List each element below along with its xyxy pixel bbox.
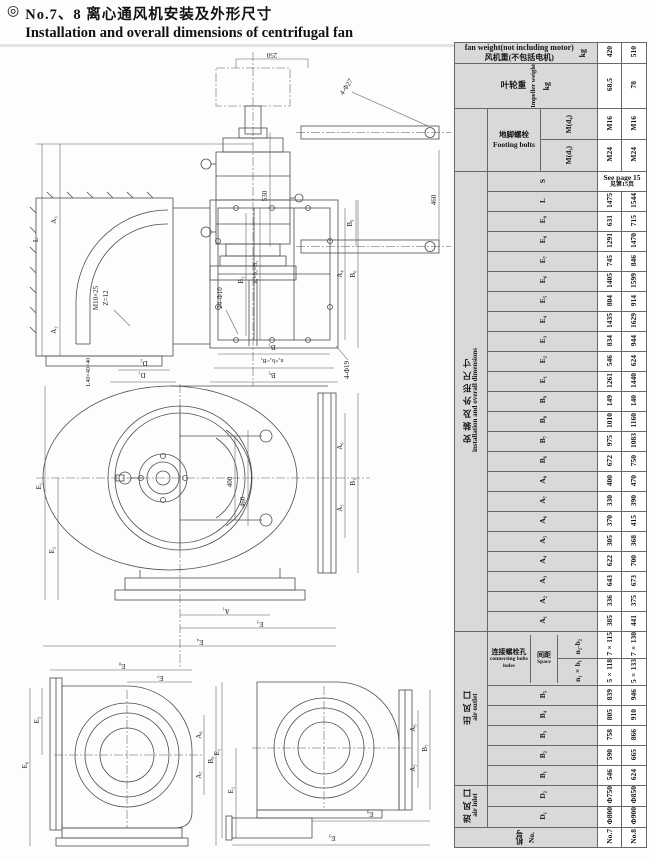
dim-label-A7: A₇ — [195, 771, 203, 779]
holes-n2b2-no8: 7×130 — [622, 631, 647, 658]
dim-label: A₂ — [488, 591, 598, 611]
dim-label-B7b: B₇ — [421, 744, 429, 752]
dim-label: B₉ — [488, 391, 598, 411]
dim-value-no8-text: 1440 — [630, 373, 638, 388]
dim-value-no8-text: 140 — [630, 395, 638, 406]
dim-label-4phi27: 4-Φ27 — [338, 77, 355, 97]
fan-weight-en: fan weight(not including motor) — [465, 43, 574, 53]
dim-label-text: B₄ — [539, 711, 547, 718]
dim-value-no7-text: 400 — [606, 475, 614, 486]
dim-value-no7-text: 805 — [606, 709, 614, 720]
dim-value-no8: 1629 — [622, 311, 647, 331]
dim-value-no8: 624 — [622, 351, 647, 371]
fan-weight-zh: 风机重(不包括电机) — [465, 53, 574, 63]
dim-value-no7-text: 1405 — [606, 273, 614, 288]
dim-value-no7: 149 — [598, 391, 622, 411]
dim-label-text: E₄ — [539, 316, 547, 323]
dim-label: B₁ — [488, 766, 598, 786]
dim-label: B₄ — [488, 706, 598, 726]
dim-value-no8-text: 624 — [630, 769, 638, 780]
unit-kg: kg — [543, 82, 551, 90]
dim-label-E1: E₁ — [35, 483, 43, 490]
dim-label-E2b: E₂ — [227, 786, 235, 793]
space-label: 间距Space — [531, 635, 558, 683]
dim-label-text: A₄ — [539, 556, 547, 564]
dim-value-no7: 643 — [598, 571, 622, 591]
dim-label-A3: A₃ — [50, 216, 58, 224]
dim-value-no8: 673 — [622, 571, 647, 591]
dim-value-no8-text: 944 — [630, 335, 638, 346]
dim-value-no8: 700 — [622, 551, 647, 571]
holes-n1b1-no8: 5×133 — [622, 659, 647, 686]
dim-value-no7: 834 — [598, 331, 622, 351]
dim-value-no8: 715 — [622, 211, 647, 231]
dim-label-250: 250 — [266, 51, 277, 59]
d2-no8: Φ850 — [622, 786, 647, 807]
dim-value-no7: 745 — [598, 251, 622, 271]
dim-label-D1: D₁ — [488, 806, 598, 827]
dim-value-no8-text: 914 — [630, 295, 638, 306]
dim-value-no7-text: 631 — [606, 215, 614, 226]
dim-label-B3: B₃ — [268, 343, 276, 351]
dim-value-no7: 385 — [598, 611, 622, 631]
dim-label: B₆ — [488, 451, 598, 471]
dim-value-no7: 1261 — [598, 371, 622, 391]
dim-value-no7-text: 385 — [606, 615, 614, 626]
drawing-volute-side: E₁ E₂ 400 460 A₆ A₅ B₇ A₁ E₃ E₄ — [30, 378, 430, 676]
page-header: ◎ No.7、8 离心通风机安装及外形尺寸 Installation and o… — [7, 3, 353, 42]
s-value: See page 15见第15页 — [598, 171, 647, 191]
dim-value-no7-text: 546 — [606, 769, 614, 780]
dim-value-no8: 944 — [622, 331, 647, 351]
dim-label-D2: D₂ — [140, 359, 148, 367]
dim-label-E7: E₇ — [156, 674, 163, 682]
dim-label-B7: B₇ — [349, 478, 357, 486]
dim-label: E₃ — [488, 331, 598, 351]
table-row-d2: 进 风 口air inlet D₂ Φ750 Φ850 — [455, 786, 647, 807]
dim-value-no7: 330 — [598, 491, 622, 511]
dim-value-no8-text: 750 — [630, 455, 638, 466]
dim-value-no7: 672 — [598, 451, 622, 471]
dim-value-no7-text: 643 — [606, 575, 614, 586]
dim-label-A5: A₅ — [336, 504, 344, 512]
line-art — [30, 670, 216, 846]
dim-label-B9: B₉ — [346, 219, 354, 227]
dim-value-no8-text: 1629 — [630, 313, 638, 328]
model-label: 机号No. — [455, 827, 598, 847]
dim-value-no8-text: 375 — [630, 595, 638, 606]
dim-label-A4: A₄ — [336, 270, 344, 278]
footing-d3-no7: M24 — [598, 140, 622, 172]
dim-value-no7: 336 — [598, 591, 622, 611]
dim-value-no7: 1405 — [598, 271, 622, 291]
dim-value-no7: 758 — [598, 726, 622, 746]
inlet-group-header: 进 风 口air inlet — [455, 786, 488, 827]
dim-label-460b: 460 — [239, 496, 247, 507]
dim-label: B₃ — [488, 726, 598, 746]
connecting-bolts-label: 连接螺栓孔connecting bolts holes — [488, 635, 531, 683]
dim-label-E3b: E₃ — [328, 834, 335, 842]
dim-value-no8-text: 441 — [630, 615, 638, 626]
drawing-front-view-right: E₁ E₂ A₆ A₅ B₇ E₉ E₃ — [212, 660, 444, 860]
dim-value-no7-text: 590 — [606, 749, 614, 760]
dim-value-no7-text: 1475 — [606, 193, 614, 208]
footing-d4-no7: M16 — [598, 108, 622, 140]
dim-label-D2: D₂ — [488, 786, 598, 807]
note-Z12: Z=12 — [102, 290, 110, 306]
dim-value-no8: 1544 — [622, 191, 647, 211]
dim-label-text: E₂ — [539, 356, 547, 363]
footing-d3-label: M(d₃) — [541, 140, 597, 171]
dim-label-text: B₂ — [539, 751, 547, 758]
dim-value-no7: 622 — [598, 551, 622, 571]
dim-label-n1b1B2: n₁×b₁=B₂ — [253, 260, 259, 283]
dim-label-A8: A₈ — [195, 731, 203, 739]
d1-no7: Φ800 — [598, 806, 622, 827]
dim-value-no7-text: 149 — [606, 395, 614, 406]
impeller-label: 叶轮重Impeller weightkg — [455, 64, 598, 109]
drawing-front-view-left: E₈ E₇ E₅ E₆ A₈ A₇ B₈ — [22, 660, 227, 860]
drawing-fan-assembly: 250 4-Φ27 530 460 B₉ L A₃ A₂ M10×25 Z=12… — [18, 48, 455, 393]
dim-label: A₈ — [488, 471, 598, 491]
dim-value-no7-text: 1291 — [606, 233, 614, 248]
dim-value-no7-text: 1261 — [606, 373, 614, 388]
dim-value-no7-text: 546 — [606, 355, 614, 366]
dim-value-no7: 1475 — [598, 191, 622, 211]
table-row-fan-weight: fan weight(not including motor)风机重(不包括电机… — [455, 43, 647, 64]
dim-label-E1b: E₁ — [213, 749, 221, 756]
fan-weight-label: fan weight(not including motor)风机重(不包括电机… — [455, 43, 598, 64]
connecting-bolts-cell: 连接螺栓孔connecting bolts holes 间距Space n₂-b… — [488, 631, 598, 686]
dim-value-no7-text: 305 — [606, 535, 614, 546]
footing-d4-no8: M16 — [622, 108, 647, 140]
dim-value-no8-text: 673 — [630, 575, 638, 586]
dim-label: B₂ — [488, 746, 598, 766]
dim-value-no8-text: 715 — [630, 215, 638, 226]
dim-value-no7-text: 804 — [606, 295, 614, 306]
dim-label-n2b2B4: n₂×b₂=B₄ — [260, 357, 283, 363]
dim-value-no8: 441 — [622, 611, 647, 631]
dim-value-no8-text: 470 — [630, 475, 638, 486]
dim-label: L — [488, 191, 598, 211]
dim-value-no7: 804 — [598, 291, 622, 311]
holes-n2b2-no7: 7×115 — [598, 631, 622, 658]
impeller-no8: 78 — [622, 64, 647, 109]
dim-value-no8: 665 — [622, 746, 647, 766]
fan-weight-no7: 420 — [598, 43, 622, 64]
dim-label-A6: A₆ — [336, 442, 344, 450]
dim-label-A6b: A₆ — [409, 724, 417, 732]
dim-value-no8: 1083 — [622, 431, 647, 451]
dim-label: E₉ — [488, 211, 598, 231]
dim-value-no7: 975 — [598, 431, 622, 451]
impeller-no7: 68.5 — [598, 64, 622, 109]
dim-label: B₇ — [488, 431, 598, 451]
fan-weight-no8-text: 510 — [630, 46, 638, 57]
dim-value-no8-text: 624 — [630, 355, 638, 366]
dim-label-E5: E₅ — [33, 716, 41, 723]
dim-label-460: 460 — [430, 194, 438, 205]
dim-label: A₄ — [488, 551, 598, 571]
dim-value-no8-text: 1160 — [630, 413, 638, 428]
dim-label: E₁ — [488, 371, 598, 391]
line-art — [222, 682, 430, 845]
dim-label-text: A₆ — [539, 516, 547, 524]
dim-value-no8: 390 — [622, 491, 647, 511]
dim-label-text: E₃ — [539, 336, 547, 343]
dim-value-no8-text: 665 — [630, 749, 638, 760]
dim-label-E4: E₄ — [196, 638, 203, 646]
dim-label-text: B₉ — [539, 396, 547, 403]
dim-label-text: A₇ — [539, 496, 547, 504]
dim-label-text: E₅ — [539, 296, 547, 303]
dim-value-no7-text: 622 — [606, 555, 614, 566]
fan-weight-no8: 510 — [622, 43, 647, 64]
dim-value-no8: 910 — [622, 706, 647, 726]
dim-label: B₅ — [488, 686, 598, 706]
holes-n1b1-no7: 5×118 — [598, 659, 622, 686]
dim-label: E₅ — [488, 291, 598, 311]
dim-value-no8: 375 — [622, 591, 647, 611]
dim-label: A₆ — [488, 511, 598, 531]
dim-label-text: B₆ — [539, 456, 547, 463]
dim-label: E₂ — [488, 351, 598, 371]
dim-label: A₃ — [488, 571, 598, 591]
dim-value-no7-text: 330 — [606, 495, 614, 506]
line-art — [36, 384, 370, 668]
holes-n2b2-label: n₂-b₂ — [558, 635, 597, 660]
footing-d4-label: M(d₄) — [541, 109, 597, 141]
dim-value-no7-text: 839 — [606, 689, 614, 700]
table-row-model: 机号No. No.7 No.8 — [455, 827, 647, 847]
note-M10x25: M10×25 — [92, 285, 100, 310]
table-row-impeller: 叶轮重Impeller weightkg 68.5 78 — [455, 64, 647, 109]
dim-value-no7: 305 — [598, 531, 622, 551]
dim-value-no8: 946 — [622, 686, 647, 706]
dim-value-no8-text: 700 — [630, 555, 638, 566]
dim-value-no7: 400 — [598, 471, 622, 491]
dim-value-no8-text: 1470 — [630, 233, 638, 248]
dim-value-no8-text: 846 — [630, 255, 638, 266]
dim-label-530: 530 — [261, 190, 269, 201]
dim-label: A₅ — [488, 531, 598, 551]
footing-d3-no8: M24 — [622, 140, 647, 172]
dim-label-L: L — [32, 238, 40, 242]
note-4phi19: 4-Φ19 — [343, 361, 351, 379]
dim-value-no8-text: 368 — [630, 535, 638, 546]
dim-value-no8: 1160 — [622, 411, 647, 431]
footing-bolts-label: 地脚螺栓Footing bolts — [488, 109, 541, 171]
dim-value-no7-text: 758 — [606, 729, 614, 740]
dim-label-E2: E₂ — [48, 546, 56, 553]
dim-value-no8: 1470 — [622, 231, 647, 251]
dim-label-text: A₁ — [539, 616, 547, 624]
table-row-footing-d4: 地脚螺栓Footing bolts M(d₄) M(d₃) M16 M16 — [455, 108, 647, 140]
dim-value-no8: 1440 — [622, 371, 647, 391]
dim-label-text: E₇ — [539, 256, 547, 263]
dim-value-no8: 415 — [622, 511, 647, 531]
dimensions-table: fan weight(not including motor)风机重(不包括电机… — [454, 42, 647, 848]
dim-value-no8-text: 1083 — [630, 433, 638, 448]
dim-label-text: E₆ — [539, 276, 547, 283]
dim-label-text: B₇ — [539, 436, 547, 443]
dim-label-400: 400 — [226, 476, 234, 487]
dim-value-no7: 631 — [598, 211, 622, 231]
dim-label: E₆ — [488, 271, 598, 291]
note-24phi10: 24-Φ10 — [216, 287, 224, 309]
dim-value-no7: 370 — [598, 511, 622, 531]
dim-label-A1: A₁ — [222, 607, 230, 615]
dim-label-text: A₃ — [539, 576, 547, 584]
impeller-no8-text: 78 — [630, 81, 638, 89]
dim-label-B6: B₆ — [349, 270, 357, 278]
dim-label-text: L — [539, 198, 547, 203]
dim-value-no7-text: 1010 — [606, 413, 614, 428]
outlet-group-header: 出 风 口air outlet — [455, 631, 488, 786]
model-zh: 机号 — [516, 830, 524, 845]
dim-value-no7: 1291 — [598, 231, 622, 251]
dim-value-no8: 470 — [622, 471, 647, 491]
dim-label: E₇ — [488, 251, 598, 271]
dim-value-no7-text: 745 — [606, 255, 614, 266]
dim-value-no8: 1599 — [622, 271, 647, 291]
dim-value-no7-text: 834 — [606, 335, 614, 346]
dim-label-text: A₅ — [539, 536, 547, 544]
dim-value-no8-text: 390 — [630, 495, 638, 506]
dim-label-text: B₅ — [539, 691, 547, 698]
impeller-no7-text: 68.5 — [606, 78, 614, 91]
dim-label-E3: E₃ — [256, 620, 263, 628]
dim-value-no7-text: 1435 — [606, 313, 614, 328]
dim-value-no8-text: 946 — [630, 689, 638, 700]
install-group-header: 安 装 及 外 形 尺 寸installation and overall di… — [455, 171, 488, 631]
line-art — [30, 52, 451, 386]
dim-label-text: B₃ — [539, 731, 547, 738]
table-row-s: 安 装 及 外 形 尺 寸installation and overall di… — [455, 171, 647, 191]
dim-value-no8-text: 1599 — [630, 273, 638, 288]
dim-value-no8: 846 — [622, 251, 647, 271]
dim-label: B₈ — [488, 411, 598, 431]
d1-no8: Φ900 — [622, 806, 647, 827]
dim-label-text: E₁ — [539, 376, 547, 383]
dim-value-no7-text: 370 — [606, 515, 614, 526]
dim-label: A₇ — [488, 491, 598, 511]
footing-bolts-cell: 地脚螺栓Footing bolts M(d₄) M(d₃) — [488, 108, 598, 171]
page-title-en: Installation and overall dimensions of c… — [25, 25, 353, 42]
unit-kg: kg — [579, 49, 587, 57]
catalog-page: ◎ No.7、8 离心通风机安装及外形尺寸 Installation and o… — [0, 0, 650, 861]
dim-value-no7: 546 — [598, 351, 622, 371]
model-en: No. — [528, 832, 536, 843]
bullet-icon: ◎ — [7, 3, 19, 20]
dim-label-text: A₂ — [539, 596, 547, 604]
dim-value-no8-text: 1544 — [630, 193, 638, 208]
dim-label-text: A₈ — [539, 476, 547, 484]
footing-group-spacer — [455, 108, 488, 171]
dim-value-no8: 624 — [622, 766, 647, 786]
dim-value-no8: 140 — [622, 391, 647, 411]
dim-value-no7: 1435 — [598, 311, 622, 331]
dim-value-no7-text: 975 — [606, 435, 614, 446]
dim-value-no8-text: 866 — [630, 729, 638, 740]
dim-label-text: E₈ — [539, 236, 547, 243]
dim-label-A2: A₂ — [50, 326, 58, 334]
dim-value-no7: 805 — [598, 706, 622, 726]
model-no7: No.7 — [598, 827, 622, 847]
table-row-holes-n2: 出 风 口air outlet 连接螺栓孔connecting bolts ho… — [455, 631, 647, 658]
page-title-zh: No.7、8 离心通风机安装及外形尺寸 — [25, 3, 353, 24]
dim-label-B1: B₁ — [237, 276, 245, 283]
scan-fold-line — [0, 44, 454, 47]
dim-label-text: E₉ — [539, 216, 547, 223]
dim-label: E₈ — [488, 231, 598, 251]
fan-weight-no7-text: 420 — [606, 46, 614, 57]
dim-label-A5b: A₅ — [409, 764, 417, 772]
d2-no7: Φ750 — [598, 786, 622, 807]
dim-value-no8-text: 415 — [630, 515, 638, 526]
impeller-en: Impeller weight — [531, 64, 538, 108]
dim-label-text: B₁ — [539, 771, 547, 778]
dim-value-no8: 914 — [622, 291, 647, 311]
impeller-zh: 叶轮重 — [501, 81, 527, 90]
dim-value-no7: 590 — [598, 746, 622, 766]
dim-value-no7: 546 — [598, 766, 622, 786]
dim-label-E8: E₈ — [118, 662, 125, 670]
dim-label: E₄ — [488, 311, 598, 331]
dim-label-text: B₈ — [539, 416, 547, 423]
dim-value-no7-text: 336 — [606, 595, 614, 606]
model-no8: No.8 — [622, 827, 647, 847]
dim-value-no7: 1010 — [598, 411, 622, 431]
dim-label-E6: E₆ — [21, 761, 29, 768]
dim-value-no8: 750 — [622, 451, 647, 471]
dim-label: A₁ — [488, 611, 598, 631]
dim-value-no8-text: 910 — [630, 709, 638, 720]
holes-n1b1-label: n₁×b₁ — [558, 659, 597, 683]
dim-label-E9: E₉ — [366, 810, 373, 818]
dim-value-no7: 839 — [598, 686, 622, 706]
dim-value-no8: 368 — [622, 531, 647, 551]
dim-value-no8: 866 — [622, 726, 647, 746]
dim-value-no7-text: 672 — [606, 455, 614, 466]
dim-label-S: S — [488, 171, 598, 191]
